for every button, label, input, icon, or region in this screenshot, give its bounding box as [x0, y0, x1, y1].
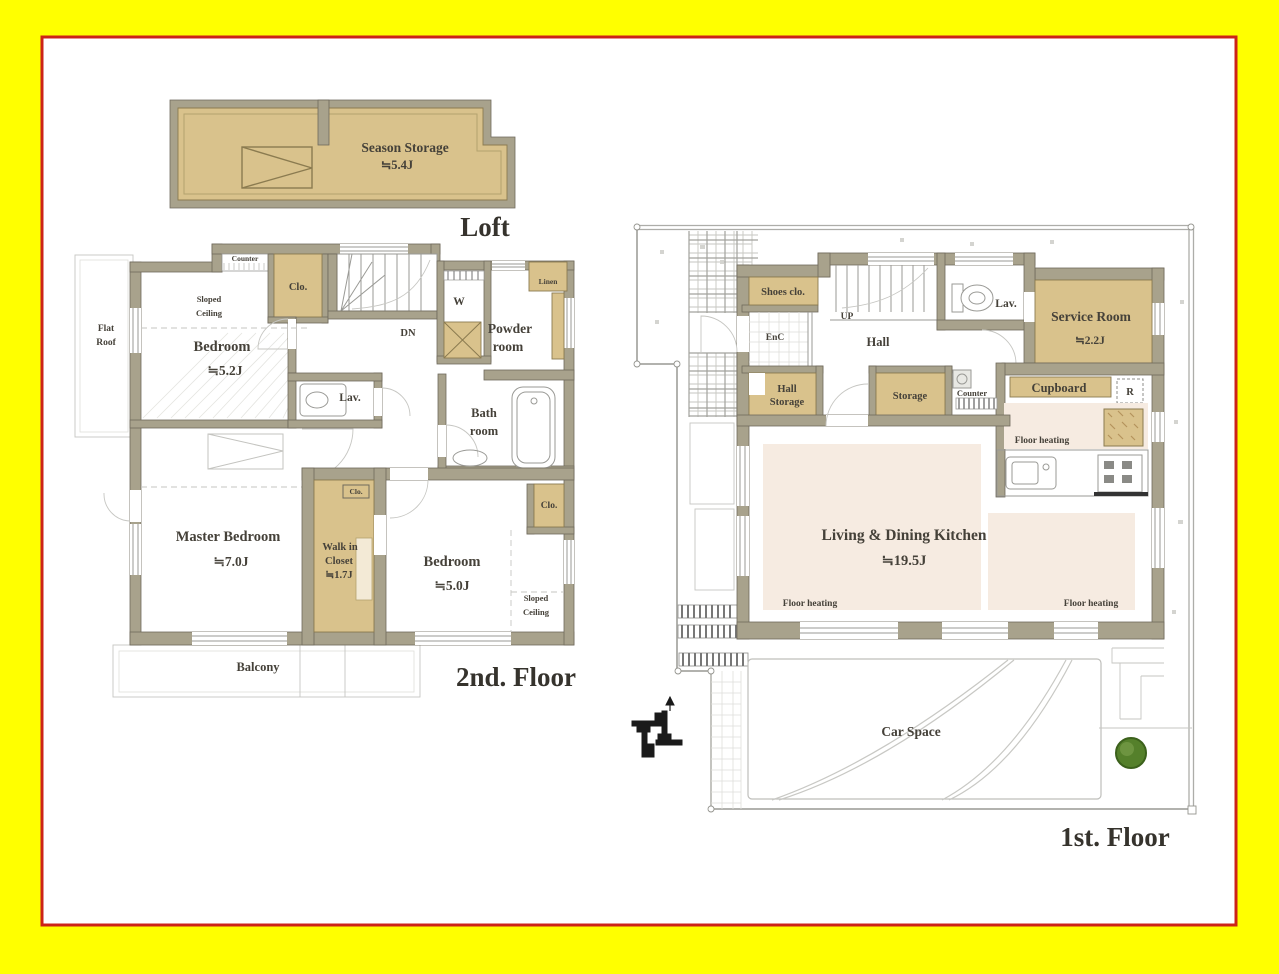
svg-text:Cupboard: Cupboard — [1032, 381, 1087, 395]
svg-text:≒5.4J: ≒5.4J — [381, 158, 413, 172]
svg-text:≒7.0J: ≒7.0J — [214, 554, 249, 569]
svg-text:Hall: Hall — [777, 384, 796, 395]
svg-text:Lav.: Lav. — [339, 392, 361, 404]
svg-text:Closet: Closet — [325, 556, 353, 567]
svg-text:DN: DN — [400, 328, 416, 339]
svg-text:Flat: Flat — [98, 324, 115, 334]
svg-text:Floor heating: Floor heating — [1015, 436, 1070, 446]
svg-text:1st. Floor: 1st. Floor — [1060, 822, 1169, 852]
svg-text:Master Bedroom: Master Bedroom — [176, 529, 281, 545]
svg-text:≒1.7J: ≒1.7J — [325, 570, 352, 581]
svg-text:Clo.: Clo. — [541, 501, 558, 511]
svg-text:Clo.: Clo. — [289, 282, 308, 293]
svg-text:EnC: EnC — [766, 333, 785, 343]
svg-text:Linen: Linen — [539, 277, 559, 286]
svg-text:Storage: Storage — [770, 397, 805, 408]
svg-text:Bedroom: Bedroom — [194, 339, 251, 355]
svg-text:Season Storage: Season Storage — [361, 140, 448, 155]
svg-text:room: room — [493, 339, 524, 354]
svg-text:Bedroom: Bedroom — [424, 554, 481, 570]
svg-text:Powder: Powder — [488, 321, 532, 336]
svg-text:≒5.2J: ≒5.2J — [208, 363, 243, 378]
svg-text:Ceiling: Ceiling — [523, 607, 550, 617]
svg-text:Sloped: Sloped — [524, 593, 549, 603]
svg-text:2nd. Floor: 2nd. Floor — [456, 662, 576, 692]
svg-text:Walk in: Walk in — [322, 542, 357, 553]
svg-text:Hall: Hall — [867, 335, 890, 349]
svg-text:Living & Dining Kitchen: Living & Dining Kitchen — [822, 527, 987, 544]
svg-text:Storage: Storage — [893, 391, 928, 402]
svg-text:UP: UP — [841, 312, 854, 322]
svg-text:Car Space: Car Space — [881, 724, 940, 739]
svg-text:Floor heating: Floor heating — [1064, 599, 1119, 609]
svg-text:W: W — [453, 296, 465, 308]
svg-text:Shoes clo.: Shoes clo. — [761, 287, 805, 298]
svg-text:Service Room: Service Room — [1051, 309, 1132, 324]
svg-text:Clo.: Clo. — [349, 487, 362, 496]
svg-text:R: R — [1126, 387, 1134, 398]
svg-text:Sloped: Sloped — [197, 294, 222, 304]
svg-text:≒5.0J: ≒5.0J — [435, 578, 470, 593]
svg-text:Loft: Loft — [460, 212, 510, 242]
svg-text:room: room — [470, 424, 499, 438]
svg-text:Counter: Counter — [957, 388, 987, 398]
svg-text:Bath: Bath — [471, 406, 497, 420]
svg-text:Roof: Roof — [96, 338, 116, 348]
svg-text:Counter: Counter — [232, 254, 259, 263]
svg-text:≒19.5J: ≒19.5J — [882, 553, 927, 569]
svg-text:≒2.2J: ≒2.2J — [1075, 335, 1105, 347]
svg-text:Lav.: Lav. — [995, 298, 1017, 310]
svg-text:Balcony: Balcony — [236, 660, 280, 674]
svg-text:Floor heating: Floor heating — [783, 599, 838, 609]
svg-text:Ceiling: Ceiling — [196, 308, 223, 318]
